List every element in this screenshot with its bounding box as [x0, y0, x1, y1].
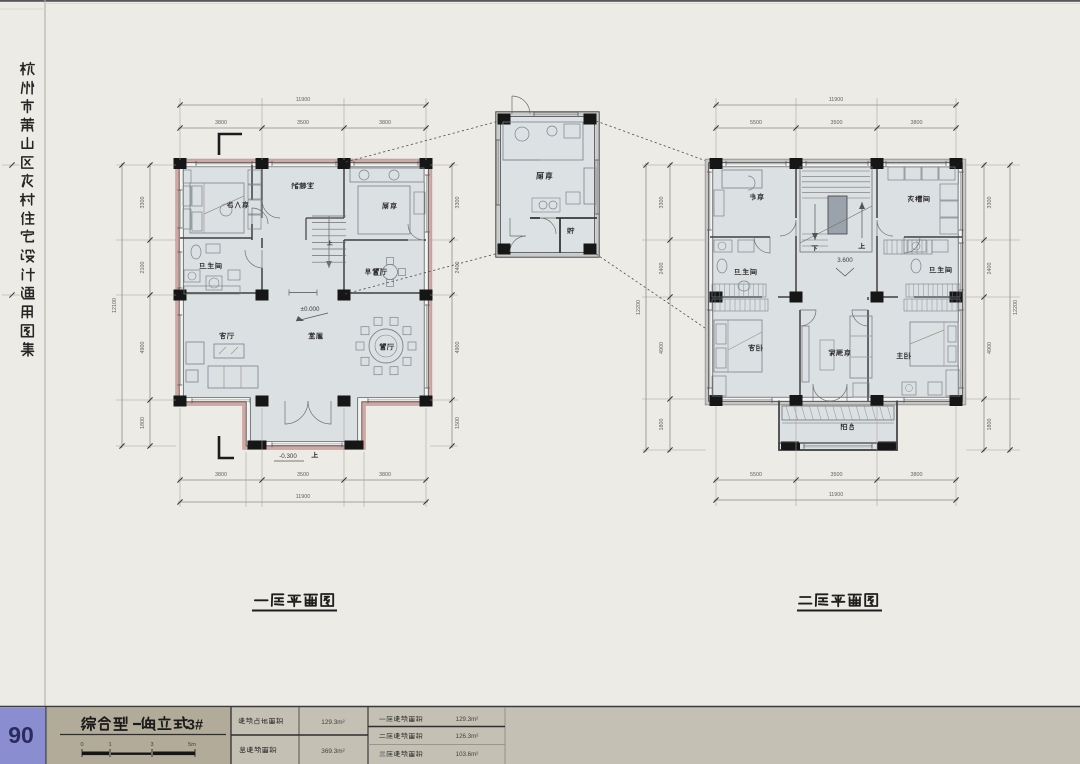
svg-text:3800: 3800 — [215, 120, 227, 126]
svg-text:4900: 4900 — [987, 342, 993, 354]
svg-text:12100: 12100 — [112, 298, 118, 313]
svg-text:3800: 3800 — [379, 120, 391, 126]
svg-text:1800: 1800 — [140, 417, 146, 429]
svg-text:1: 1 — [108, 742, 111, 748]
svg-text:2400: 2400 — [455, 262, 461, 274]
svg-text:3800: 3800 — [911, 120, 923, 126]
svg-text:129.3m²: 129.3m² — [456, 716, 479, 723]
svg-text:3300: 3300 — [455, 197, 461, 209]
svg-text:3800: 3800 — [215, 472, 227, 478]
svg-text:3.600: 3.600 — [837, 257, 853, 264]
svg-text:2400: 2400 — [659, 263, 665, 275]
svg-text:2400: 2400 — [987, 263, 993, 275]
svg-text:1800: 1800 — [659, 419, 665, 431]
svg-text:3800: 3800 — [379, 472, 391, 478]
svg-text:3500: 3500 — [297, 120, 309, 126]
svg-text:3#: 3# — [187, 718, 203, 734]
svg-text:5m: 5m — [188, 742, 196, 748]
svg-text:1800: 1800 — [987, 419, 993, 431]
svg-text:4900: 4900 — [659, 342, 665, 354]
svg-text:129.3m²: 129.3m² — [321, 719, 344, 726]
svg-text:103.6m²: 103.6m² — [456, 751, 479, 758]
svg-text:±0.000: ±0.000 — [301, 306, 320, 313]
svg-text:3500: 3500 — [297, 472, 309, 478]
svg-text:3500: 3500 — [831, 120, 843, 126]
svg-text:11900: 11900 — [296, 97, 311, 103]
svg-text:126.3m²: 126.3m² — [456, 733, 479, 740]
svg-text:369.3m²: 369.3m² — [321, 748, 344, 755]
svg-text:5500: 5500 — [750, 120, 762, 126]
svg-text:3300: 3300 — [987, 197, 993, 209]
svg-text:3300: 3300 — [659, 197, 665, 209]
svg-text:11900: 11900 — [829, 492, 844, 498]
svg-text:4900: 4900 — [455, 342, 461, 354]
svg-text:2100: 2100 — [140, 262, 146, 274]
svg-text:12200: 12200 — [636, 300, 642, 315]
svg-text:3: 3 — [150, 742, 153, 748]
svg-text:-0.300: -0.300 — [279, 453, 297, 460]
svg-text:3300: 3300 — [140, 197, 146, 209]
svg-text:4900: 4900 — [140, 342, 146, 354]
svg-text:12200: 12200 — [1013, 300, 1019, 315]
svg-text:3800: 3800 — [911, 472, 923, 478]
svg-text:11900: 11900 — [296, 494, 311, 500]
svg-text:3500: 3500 — [831, 472, 843, 478]
svg-text:90: 90 — [8, 722, 34, 748]
svg-text:11900: 11900 — [829, 97, 844, 103]
svg-text:0: 0 — [80, 742, 83, 748]
svg-text:5500: 5500 — [750, 472, 762, 478]
svg-text:1500: 1500 — [455, 417, 461, 429]
